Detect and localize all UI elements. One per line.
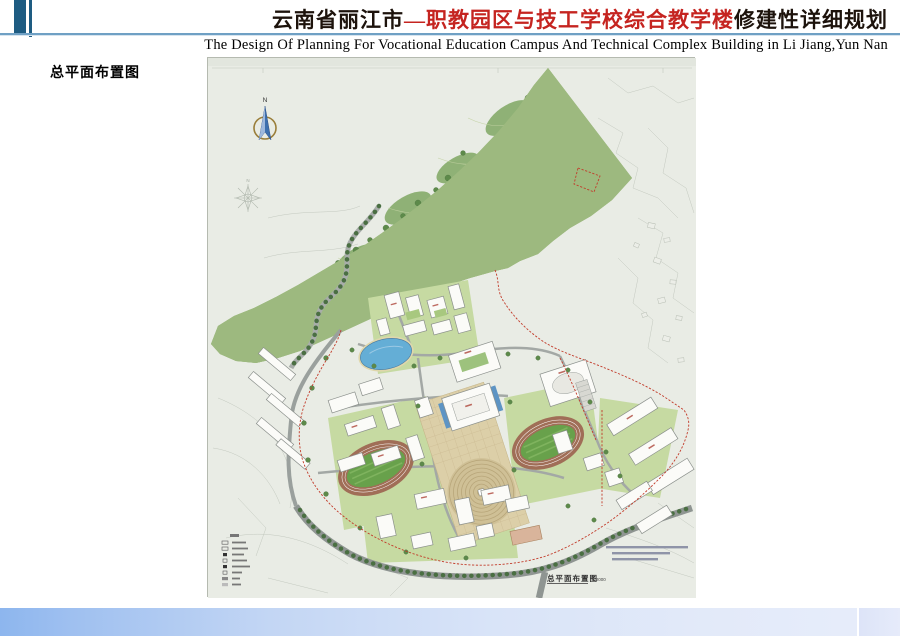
page-subtitle: The Design Of Planning For Vocational Ed… bbox=[204, 37, 888, 54]
svg-text:N: N bbox=[263, 97, 268, 104]
footer-gradient-bar bbox=[0, 608, 900, 636]
footer-end-segment bbox=[859, 608, 900, 636]
page-title: 云南省丽江市—职教园区与技工学校综合教学楼修建性详细规划 bbox=[272, 4, 888, 34]
site-plan: N N 总平面布置图 bbox=[208, 58, 696, 598]
svg-text:N: N bbox=[246, 178, 249, 183]
page-title-part1: 云南省丽江市 bbox=[272, 8, 404, 32]
site-plan-frame: N N 总平面布置图 bbox=[207, 57, 695, 597]
section-label: 总平面布置图 bbox=[50, 62, 140, 82]
plan-caption-group: 总平面布置图 1:2000 bbox=[547, 573, 606, 584]
slide-page: 云南省丽江市—职教园区与技工学校综合教学楼修建性详细规划 The Design … bbox=[0, 0, 900, 636]
header-logo-bar bbox=[14, 0, 26, 33]
header-logo-thin-line bbox=[29, 0, 32, 37]
page-title-part3: 修建性详细规划 bbox=[734, 8, 888, 32]
plan-caption: 总平面布置图 bbox=[547, 573, 598, 583]
page-title-part2: —职教园区与技工学校综合教学楼 bbox=[404, 8, 734, 32]
plan-scale: 1:2000 bbox=[592, 577, 606, 582]
